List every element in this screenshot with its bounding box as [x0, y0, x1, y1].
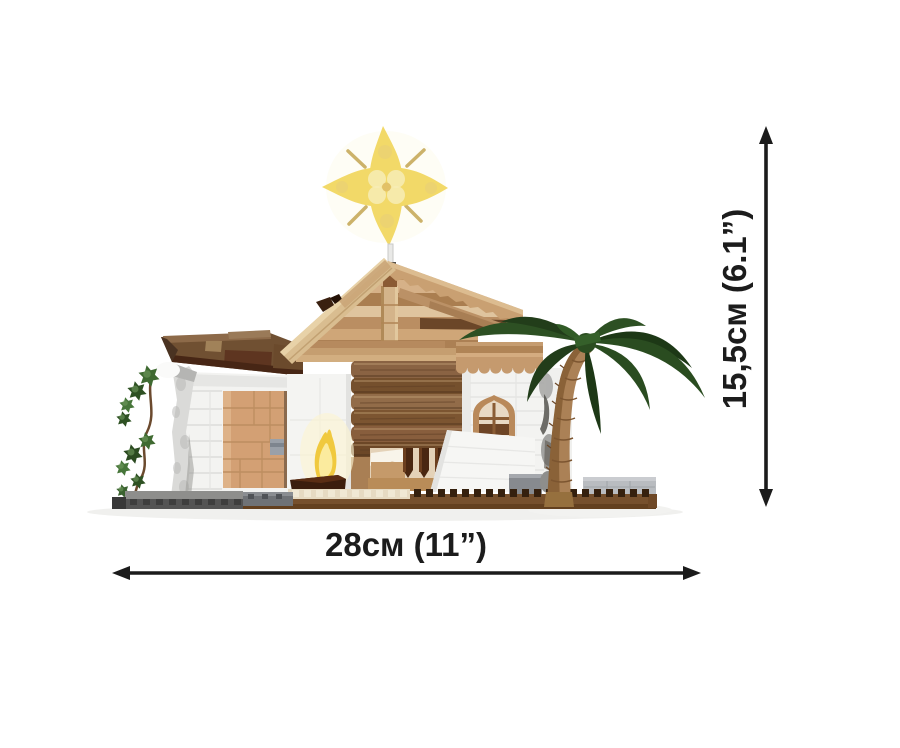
svg-text:15,5cм (6.1”): 15,5cм (6.1”) — [716, 209, 753, 410]
svg-text:28cм (11”): 28cм (11”) — [325, 526, 487, 563]
